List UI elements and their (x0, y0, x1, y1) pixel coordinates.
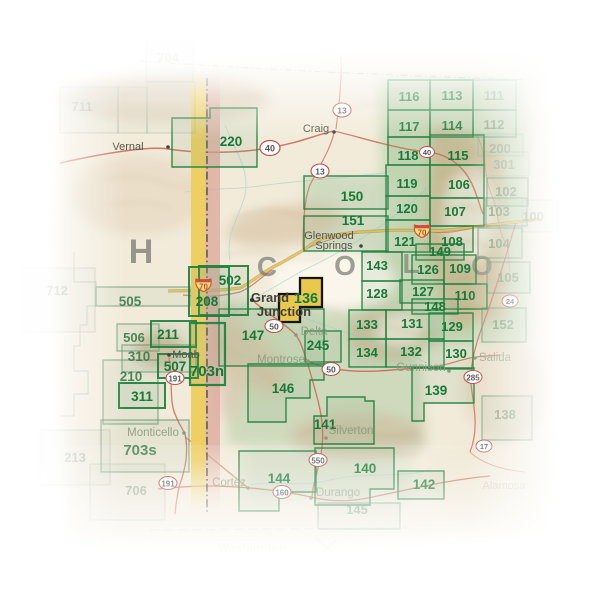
svg-text:128: 128 (366, 286, 388, 301)
svg-text:Grand: Grand (251, 290, 289, 305)
svg-text:143: 143 (366, 258, 388, 273)
svg-text:146: 146 (272, 381, 295, 396)
svg-text:208: 208 (196, 294, 219, 309)
svg-text:127: 127 (412, 284, 434, 299)
svg-text:Silverton: Silverton (329, 425, 374, 437)
svg-text:139: 139 (425, 383, 448, 398)
svg-text:133: 133 (356, 317, 378, 332)
svg-text:311: 311 (131, 389, 153, 404)
svg-text:40: 40 (265, 144, 275, 154)
svg-text:107: 107 (444, 204, 466, 219)
svg-text:109: 109 (449, 261, 471, 276)
svg-text:Moab: Moab (172, 349, 200, 361)
svg-text:502: 502 (219, 273, 242, 288)
svg-text:70: 70 (199, 283, 208, 292)
svg-text:Springs: Springs (315, 240, 353, 252)
svg-text:131: 131 (401, 316, 423, 331)
svg-text:Montrose: Montrose (257, 354, 305, 366)
svg-text:151: 151 (342, 213, 365, 228)
svg-text:50: 50 (326, 365, 336, 375)
svg-text:245: 245 (307, 338, 330, 353)
svg-text:148: 148 (424, 299, 446, 314)
svg-text:119: 119 (397, 176, 418, 191)
svg-text:506: 506 (123, 330, 145, 345)
svg-text:H: H (129, 233, 154, 271)
svg-text:115: 115 (448, 148, 469, 163)
svg-text:191: 191 (168, 375, 182, 384)
svg-text:121: 121 (394, 234, 416, 249)
svg-text:Delta: Delta (301, 326, 328, 338)
svg-text:310: 310 (128, 349, 151, 364)
svg-text:120: 120 (396, 201, 418, 216)
svg-text:150: 150 (341, 189, 364, 204)
svg-text:Junction: Junction (257, 304, 311, 319)
svg-text:40: 40 (423, 148, 431, 157)
svg-text:106: 106 (448, 177, 470, 192)
svg-text:130: 130 (445, 346, 467, 361)
svg-text:703n: 703n (190, 363, 224, 380)
svg-text:134: 134 (356, 345, 378, 360)
svg-text:50: 50 (269, 322, 279, 332)
svg-text:129: 129 (441, 319, 463, 334)
svg-text:147: 147 (242, 328, 265, 343)
svg-text:70: 70 (418, 229, 427, 238)
svg-text:211: 211 (157, 327, 179, 342)
svg-text:Monticello: Monticello (127, 427, 179, 439)
svg-text:13: 13 (315, 167, 325, 177)
svg-text:C: C (257, 251, 277, 282)
svg-text:118: 118 (398, 148, 419, 163)
svg-text:126: 126 (417, 262, 439, 277)
svg-text:132: 132 (400, 344, 422, 359)
svg-text:149: 149 (429, 244, 451, 259)
svg-text:Gunnison: Gunnison (396, 362, 445, 374)
svg-text:O: O (334, 250, 356, 281)
